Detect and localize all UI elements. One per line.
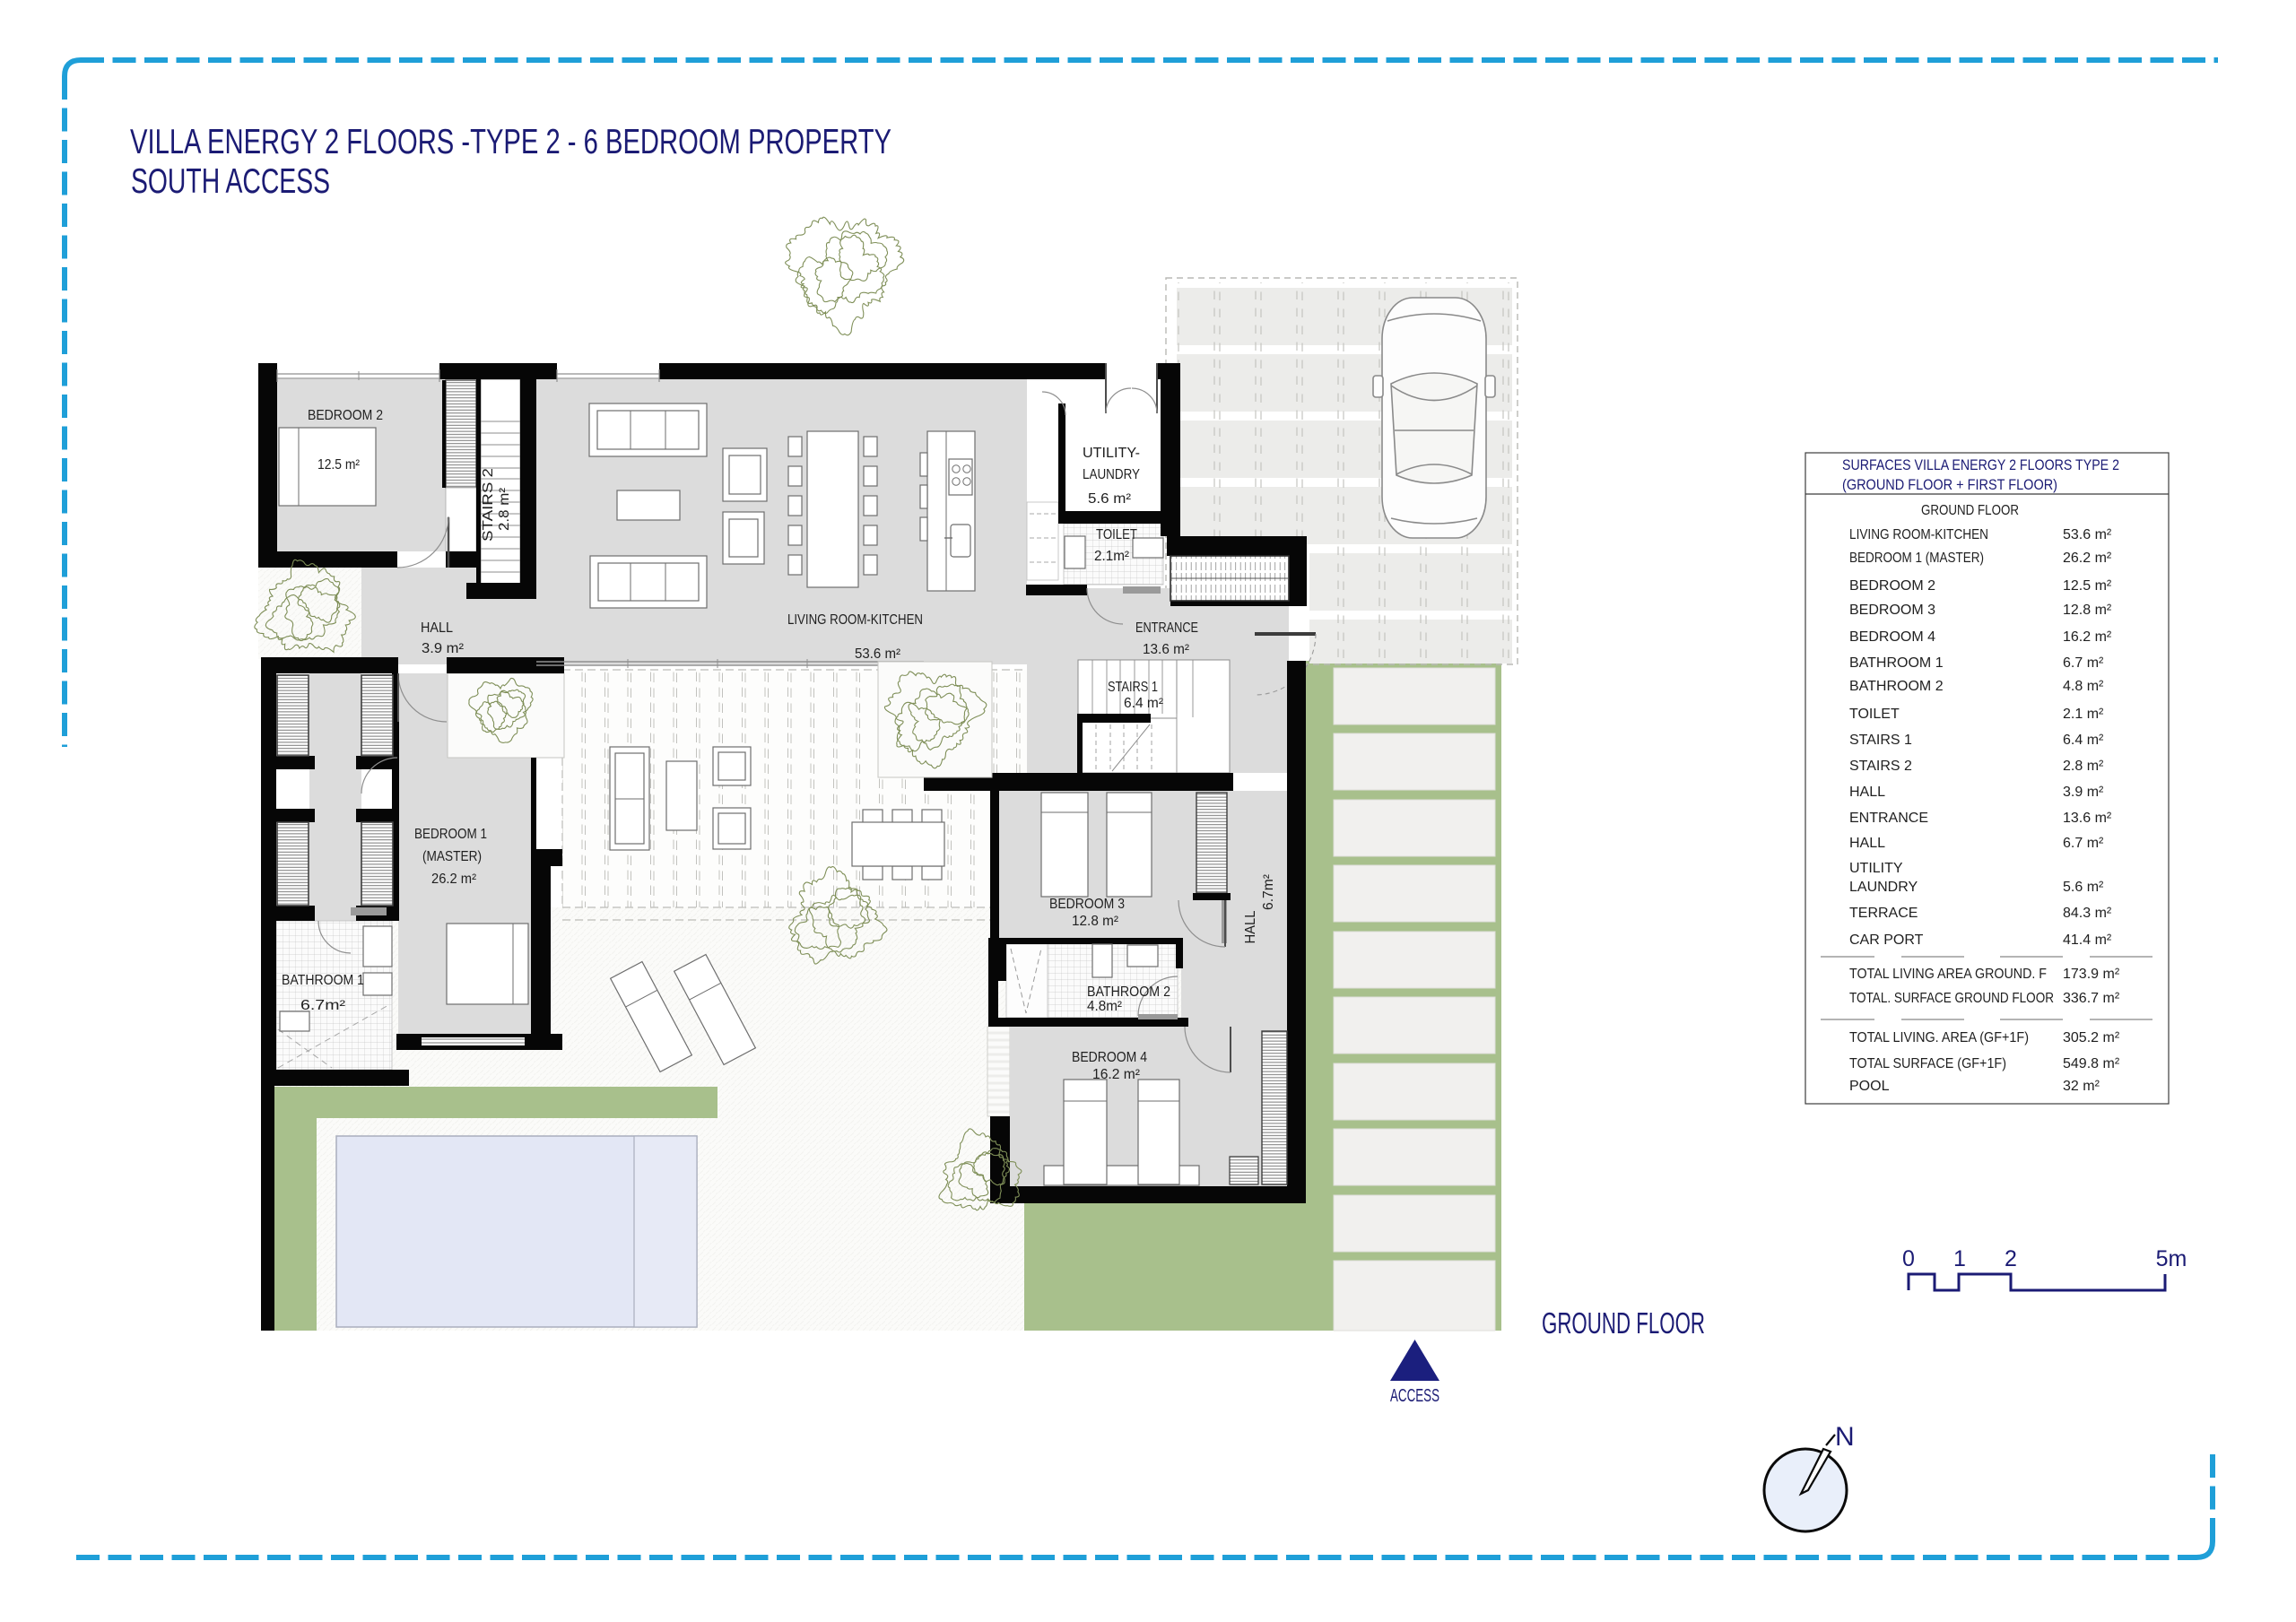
svg-text:6.7 m²: 6.7 m² — [2063, 655, 2104, 671]
svg-text:(MASTER): (MASTER) — [422, 849, 482, 864]
svg-text:CAR PORT: CAR PORT — [1849, 932, 1924, 948]
svg-text:53.6 m²: 53.6 m² — [855, 646, 900, 662]
svg-text:GROUND FLOOR: GROUND FLOOR — [1542, 1306, 1705, 1340]
svg-text:STAIRS 2: STAIRS 2 — [481, 468, 496, 542]
svg-text:16.2 m²: 16.2 m² — [2063, 629, 2112, 645]
svg-text:HALL: HALL — [421, 620, 453, 636]
svg-text:6.4 m²: 6.4 m² — [2063, 733, 2104, 748]
svg-text:BEDROOM 2: BEDROOM 2 — [1849, 578, 1935, 594]
svg-text:LIVING ROOM-KITCHEN: LIVING ROOM-KITCHEN — [1849, 527, 1988, 542]
svg-text:3.9 m²: 3.9 m² — [2063, 785, 2104, 800]
svg-text:BATHROOM 1: BATHROOM 1 — [1849, 655, 1944, 671]
svg-text:HALL: HALL — [1849, 836, 1885, 851]
svg-text:ENTRANCE: ENTRANCE — [1135, 620, 1198, 636]
svg-text:BATHROOM 2: BATHROOM 2 — [1849, 679, 1944, 694]
svg-text:6.7 m²: 6.7 m² — [2063, 836, 2104, 851]
svg-text:41.4 m²: 41.4 m² — [2063, 932, 2112, 948]
svg-text:TERRACE: TERRACE — [1849, 906, 1918, 921]
svg-text:2.8 m²: 2.8 m² — [2063, 759, 2104, 774]
svg-text:TOILET: TOILET — [1096, 527, 1137, 542]
svg-text:TOTAL. SURFACE GROUND FLOOR: TOTAL. SURFACE GROUND FLOOR — [1849, 991, 2054, 1006]
svg-text:173.9 m²: 173.9 m² — [2063, 967, 2120, 982]
svg-text:32 m²: 32 m² — [2063, 1079, 2100, 1094]
svg-text:2.8 m²: 2.8 m² — [497, 488, 512, 531]
svg-text:2.1m²: 2.1m² — [1094, 549, 1129, 564]
svg-text:6.7m²: 6.7m² — [1261, 874, 1276, 910]
svg-text:16.2 m²: 16.2 m² — [1092, 1067, 1140, 1082]
svg-text:POOL: POOL — [1849, 1079, 1890, 1094]
svg-text:0: 0 — [1902, 1246, 1915, 1271]
svg-text:SOUTH ACCESS: SOUTH ACCESS — [131, 162, 330, 201]
svg-text:SURFACES VILLA ENERGY 2 FLOORS: SURFACES VILLA ENERGY 2 FLOORS TYPE 2 — [1842, 456, 2119, 473]
svg-text:2.1 m²: 2.1 m² — [2063, 707, 2104, 722]
svg-text:5.6 m²: 5.6 m² — [2063, 880, 2104, 895]
svg-text:BEDROOM 4: BEDROOM 4 — [1849, 629, 1935, 645]
svg-text:12.5 m²: 12.5 m² — [317, 457, 360, 473]
svg-text:BEDROOM 3: BEDROOM 3 — [1849, 603, 1935, 618]
svg-text:TOTAL SURFACE (GF+1F): TOTAL SURFACE (GF+1F) — [1849, 1056, 2006, 1071]
svg-text:1: 1 — [1953, 1246, 1966, 1271]
svg-text:HALL: HALL — [1243, 910, 1258, 943]
svg-text:BATHROOM 1: BATHROOM 1 — [282, 973, 364, 988]
svg-text:12.8 m²: 12.8 m² — [2063, 603, 2112, 618]
svg-text:13.6 m²: 13.6 m² — [2063, 811, 2112, 826]
svg-text:26.2 m²: 26.2 m² — [431, 872, 476, 887]
svg-text:BEDROOM 1 (MASTER): BEDROOM 1 (MASTER) — [1849, 551, 1984, 566]
svg-text:TOTAL LIVING AREA GROUND. F: TOTAL LIVING AREA GROUND. F — [1849, 967, 2047, 982]
svg-text:LIVING ROOM-KITCHEN: LIVING ROOM-KITCHEN — [787, 612, 923, 628]
svg-text:STAIRS 1: STAIRS 1 — [1849, 733, 1912, 748]
svg-text:5m: 5m — [2156, 1246, 2187, 1271]
svg-text:VILLA ENERGY 2 FLOORS -TYPE 2: VILLA ENERGY 2 FLOORS -TYPE 2 - 6 BEDROO… — [130, 123, 891, 161]
svg-text:UTILITY: UTILITY — [1849, 861, 1903, 876]
svg-text:ENTRANCE: ENTRANCE — [1849, 811, 1928, 826]
svg-text:UTILITY-: UTILITY- — [1083, 446, 1140, 461]
svg-text:LAUNDRY: LAUNDRY — [1083, 467, 1140, 482]
svg-text:13.6 m²: 13.6 m² — [1143, 642, 1189, 657]
svg-text:6.7m²: 6.7m² — [300, 998, 345, 1013]
svg-text:12.5 m²: 12.5 m² — [2063, 578, 2112, 594]
svg-text:549.8 m²: 549.8 m² — [2063, 1056, 2120, 1071]
svg-text:BEDROOM 1: BEDROOM 1 — [414, 827, 487, 842]
svg-text:6.4 m²: 6.4 m² — [1124, 696, 1163, 711]
svg-text:305.2 m²: 305.2 m² — [2063, 1030, 2120, 1045]
svg-text:(GROUND FLOOR + FIRST FLOOR): (GROUND FLOOR + FIRST FLOOR) — [1842, 476, 2057, 493]
svg-text:TOILET: TOILET — [1849, 707, 1900, 722]
svg-text:12.8 m²: 12.8 m² — [1072, 914, 1118, 929]
svg-text:53.6 m²: 53.6 m² — [2063, 527, 2112, 542]
svg-text:STAIRS 1: STAIRS 1 — [1108, 680, 1158, 695]
svg-text:3.9 m²: 3.9 m² — [422, 641, 464, 656]
svg-text:BATHROOM 2: BATHROOM 2 — [1087, 984, 1170, 1000]
svg-text:2: 2 — [2005, 1246, 2017, 1271]
svg-text:26.2 m²: 26.2 m² — [2063, 551, 2112, 566]
svg-text:4.8 m²: 4.8 m² — [2063, 679, 2104, 694]
svg-text:N: N — [1835, 1422, 1855, 1452]
svg-text:TOTAL LIVING. AREA (GF+1F): TOTAL LIVING. AREA (GF+1F) — [1849, 1030, 2029, 1045]
svg-text:BEDROOM 3: BEDROOM 3 — [1049, 897, 1125, 912]
svg-text:84.3 m²: 84.3 m² — [2063, 906, 2112, 921]
svg-text:336.7 m²: 336.7 m² — [2063, 991, 2120, 1006]
svg-text:BEDROOM 4: BEDROOM 4 — [1072, 1050, 1147, 1065]
svg-text:GROUND FLOOR: GROUND FLOOR — [1921, 503, 2019, 518]
svg-text:BEDROOM 2: BEDROOM 2 — [308, 408, 383, 423]
svg-text:LAUNDRY: LAUNDRY — [1849, 880, 1918, 895]
svg-text:HALL: HALL — [1849, 785, 1885, 800]
svg-text:4.8m²: 4.8m² — [1087, 999, 1122, 1014]
svg-text:5.6 m²: 5.6 m² — [1088, 491, 1131, 507]
svg-text:ACCESS: ACCESS — [1390, 1386, 1439, 1406]
svg-text:STAIRS 2: STAIRS 2 — [1849, 759, 1912, 774]
